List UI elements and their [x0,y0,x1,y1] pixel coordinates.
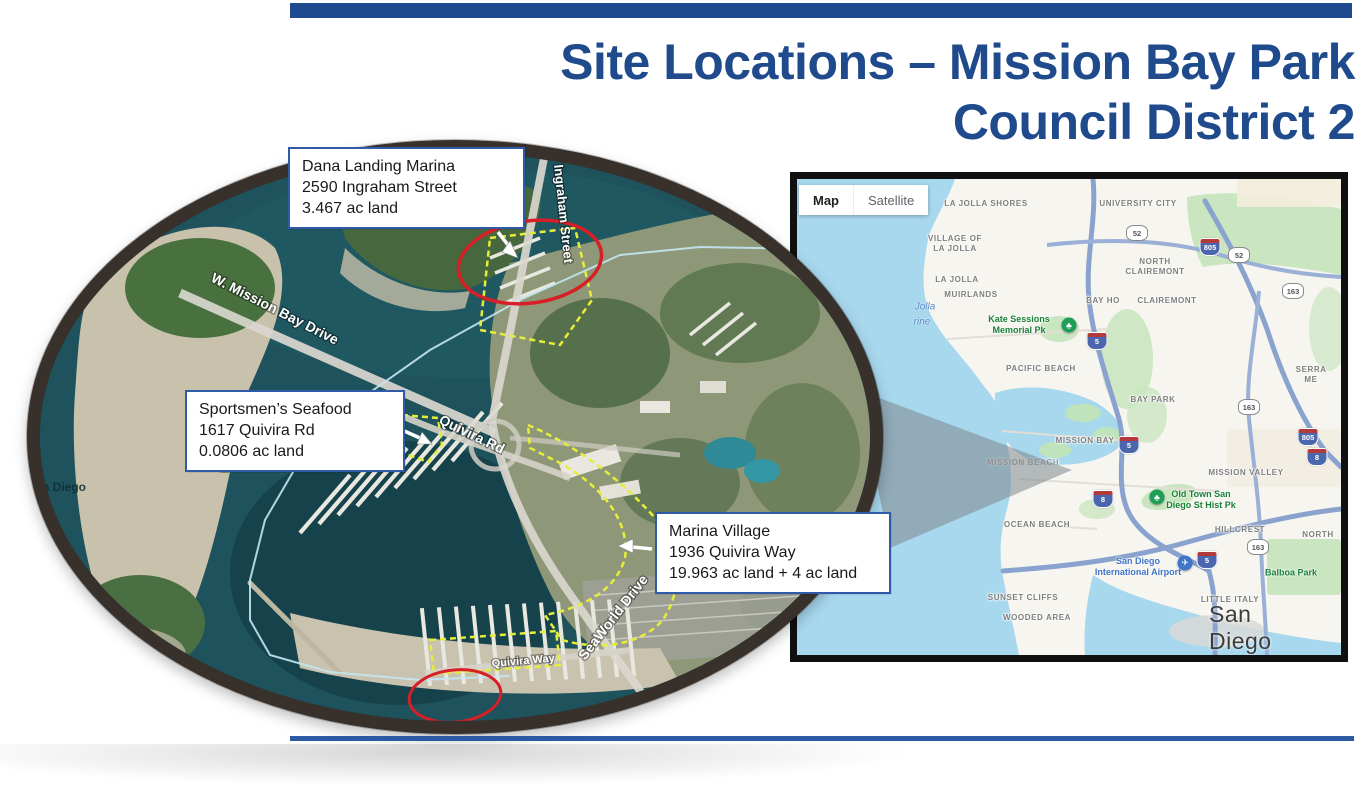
airport-icon: ✈ [1178,556,1193,571]
map-label: UNIVERSITY CITY [1099,199,1176,209]
callout-dana-landing: Dana Landing Marina 2590 Ingraham Street… [288,147,525,229]
page-title: Site Locations – Mission Bay Park Counci… [255,32,1355,152]
map-label: HILLCREST [1215,525,1265,535]
interstate-shield: 805 [1298,428,1319,446]
park-label: Kate Sessions Memorial Pk [973,314,1065,336]
water-label-fragment: rine [914,317,931,328]
interstate-shield: 5 [1087,332,1108,350]
city-label: San Diego [1209,601,1297,655]
route-shield: 163 [1238,399,1260,415]
callout-area: 3.467 ac land [302,198,511,219]
aerial-art: W. Mission Bay Drive Ingraham Street Qui… [40,153,870,721]
interstate-shield: 5 [1119,436,1140,454]
callout-sportsmens-seafood: Sportsmen’s Seafood 1617 Quivira Rd 0.08… [185,390,405,472]
park-icon: ♣ [1150,490,1165,505]
slide: { "page": { "title_line1": "Site Locatio… [0,0,1367,788]
map-label: SERRA ME [1296,365,1327,385]
top-accent-bar [290,3,1352,18]
map-label: MUIRLANDS [944,290,997,300]
callout-address: 1617 Quivira Rd [199,420,391,441]
map-label: SUNSET CLIFFS [988,593,1058,603]
map-label: WOODED AREA [1003,613,1071,623]
callout-title: Marina Village [669,521,877,542]
map-label: BAY HO [1086,296,1120,306]
title-line-1: Site Locations – Mission Bay Park [255,32,1355,92]
route-shield: 52 [1126,225,1148,241]
interstate-shield: 8 [1093,490,1114,508]
callout-area: 19.963 ac land + 4 ac land [669,563,877,584]
interstate-shield: 5 [1197,551,1218,569]
callout-title: Sportsmen’s Seafood [199,399,391,420]
map-label: OCEAN BEACH [1004,520,1070,530]
callout-address: 1936 Quivira Way [669,542,877,563]
map-label: VILLAGE OF LA JOLLA [922,234,988,254]
callout-marina-village: Marina Village 1936 Quivira Way 19.963 a… [655,512,891,594]
map-label: LA JOLLA [935,275,979,285]
water-label-fragment: Jolla [915,302,936,313]
callout-address: 2590 Ingraham Street [302,177,511,198]
park-icon: ♣ [1062,318,1077,333]
map-label: PACIFIC BEACH [1006,364,1076,374]
callout-area: 0.0806 ac land [199,441,391,462]
map-label: MISSION BEACH [987,458,1059,468]
aerial-photo-oval: W. Mission Bay Drive Ingraham Street Qui… [27,140,883,734]
map-label: LA JOLLA SHORES [944,199,1028,209]
map-label: MISSION BAY [1056,436,1115,446]
bottom-accent-bar [290,736,1354,741]
map-label: NORTH [1302,530,1333,540]
park-label: Balboa Park [1246,568,1336,579]
aerial-watermark: n Diego [42,480,86,494]
interstate-shield: 8 [1307,448,1328,466]
callout-title: Dana Landing Marina [302,156,511,177]
page-shadow [0,744,1100,788]
map-label: MISSION VALLEY [1208,468,1283,478]
park-label: Old Town San Diego St Hist Pk [1163,489,1239,511]
map-label: BAY PARK [1130,395,1175,405]
route-shield: 163 [1247,539,1269,555]
map-label: NORTH CLAIREMONT [1115,257,1195,277]
airport-label: San Diego International Airport [1092,556,1184,578]
route-shield: 52 [1228,247,1250,263]
map-label: CLAIREMONT [1137,296,1196,306]
route-shield: 163 [1282,283,1304,299]
interstate-shield: 805 [1200,238,1221,256]
